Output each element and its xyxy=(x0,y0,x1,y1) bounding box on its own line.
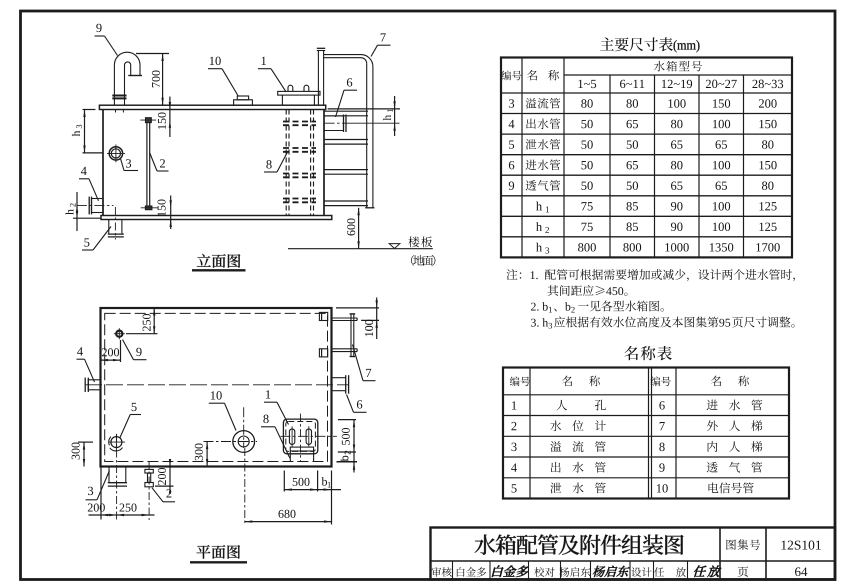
svg-text:2: 2 xyxy=(343,450,352,455)
svg-text:b: b xyxy=(340,455,352,461)
